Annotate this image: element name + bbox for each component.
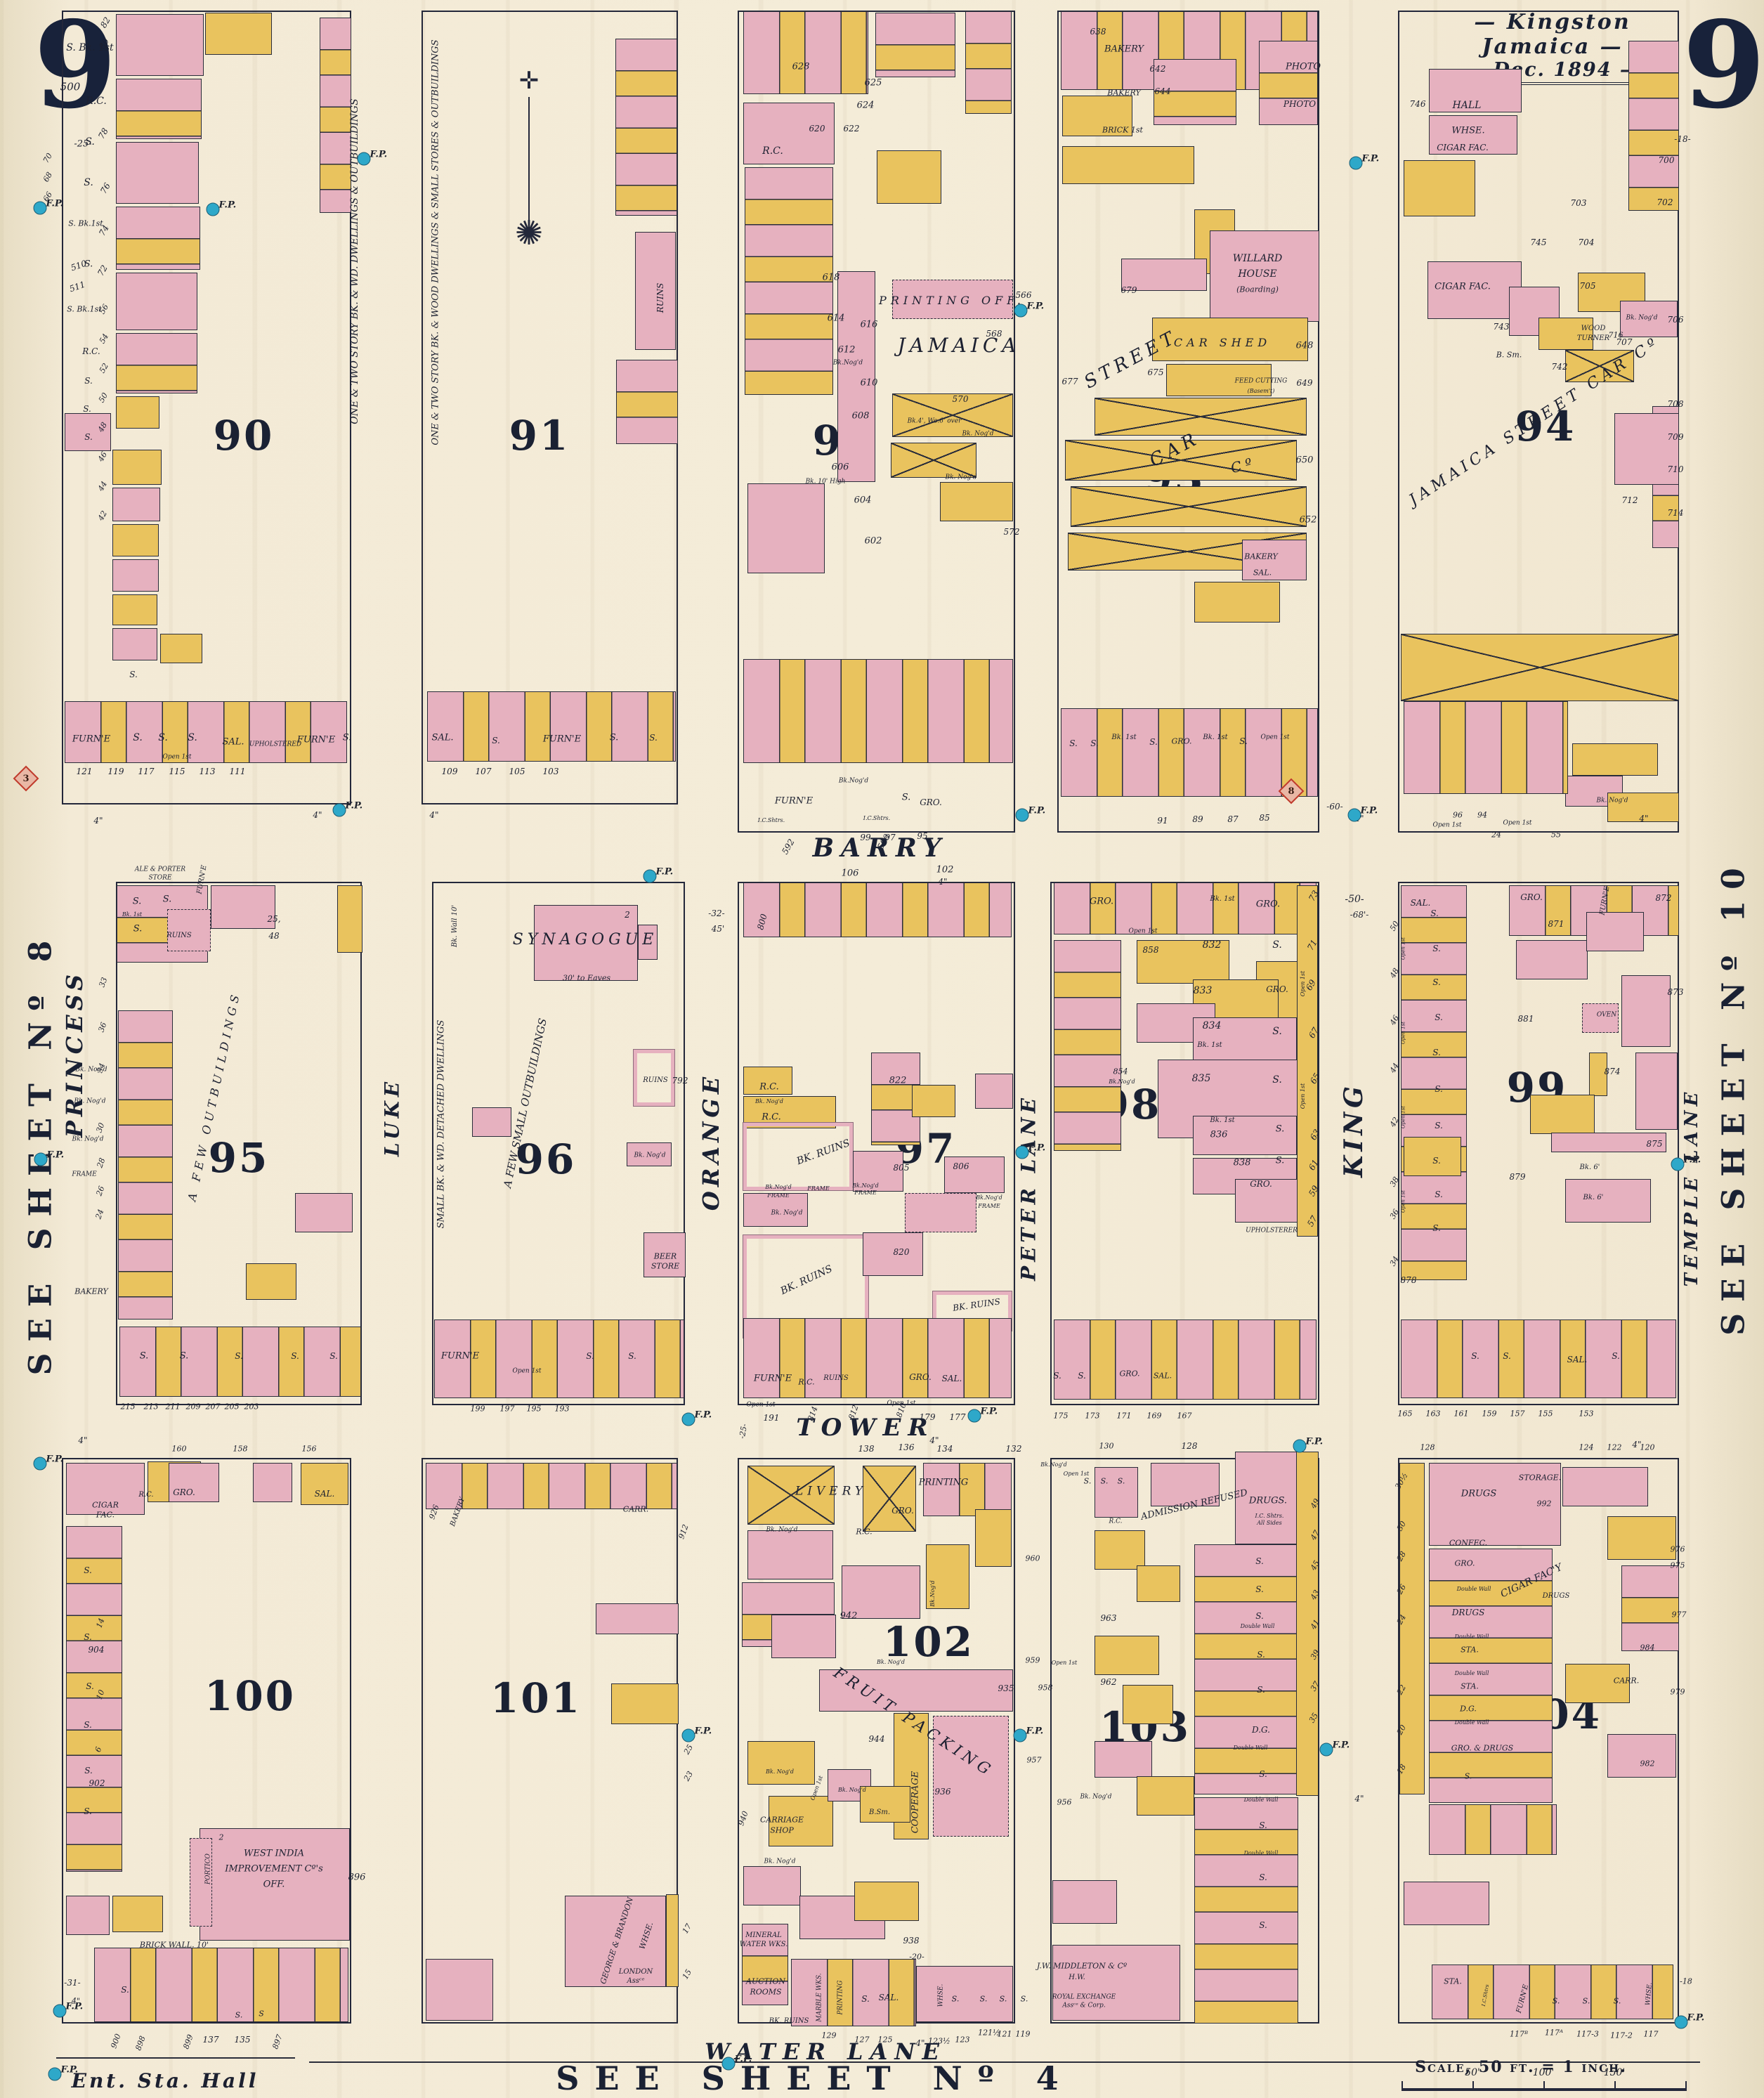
fire-plug-label: F.P.	[1306, 1437, 1324, 1447]
map-label: 106	[842, 869, 859, 878]
map-label: LONDON	[619, 1969, 653, 1976]
map-label: 936	[935, 1787, 951, 1796]
map-label: 896	[348, 1873, 366, 1882]
map-label: DRUGS	[1543, 1593, 1570, 1600]
map-label: 746	[1410, 100, 1426, 108]
map-label: S.	[861, 1995, 870, 2003]
fire-plug-label: F.P.	[219, 200, 237, 211]
map-label: 4"	[938, 878, 947, 886]
map-label: J.W. MIDDLETON & Cº	[1037, 1962, 1127, 1970]
map-label: CARRIAGE	[760, 1816, 804, 1824]
map-label: Open 1st	[1402, 937, 1406, 960]
building	[616, 360, 678, 444]
map-label: 107	[476, 767, 492, 776]
map-label: FRAME	[72, 1172, 96, 1178]
map-label: Bk. 10' High	[806, 479, 846, 486]
building	[747, 483, 825, 573]
fire-plug-marker: F.P.	[1348, 809, 1361, 822]
map-label: S.	[586, 1352, 594, 1360]
map-label: 156	[302, 1445, 317, 1453]
fire-plug-marker: F.P.	[1671, 1158, 1685, 1171]
building	[1095, 1530, 1145, 1570]
fire-plug-icon	[968, 1409, 981, 1423]
map-label: R.C.	[798, 1379, 814, 1386]
map-label: S.	[1435, 1121, 1443, 1130]
map-label: 960	[1026, 1555, 1040, 1563]
fire-plug-marker: F.P.	[682, 1729, 695, 1742]
map-label: D.G.	[1460, 1705, 1477, 1713]
map-label: 165	[1398, 1410, 1413, 1418]
map-label: SAL.	[942, 1374, 962, 1383]
map-label: HALL	[1453, 100, 1482, 110]
map-label: -32-	[708, 909, 724, 918]
fire-plug-icon	[333, 804, 346, 817]
building	[295, 1193, 353, 1232]
map-label: 161	[1454, 1410, 1469, 1418]
map-label: 130	[1099, 1442, 1114, 1450]
building	[116, 273, 197, 330]
map-label: Bk. Nog'd	[771, 1211, 802, 1217]
map-label: Open 1st	[1128, 929, 1157, 935]
map-label: ROYAL EXCHANGE	[1052, 1995, 1116, 2001]
map-label: Double Wall	[1234, 1745, 1268, 1751]
building	[1621, 975, 1671, 1047]
map-label: 159	[1482, 1410, 1497, 1418]
scale-text: Scale, 50 ft. = 1 inch.	[1415, 2059, 1627, 2075]
map-label: S.	[180, 1352, 189, 1361]
map-label: Double Wall	[1455, 1671, 1489, 1676]
fire-plug-icon	[1348, 809, 1361, 822]
map-label: S.	[1257, 1686, 1265, 1694]
map-label: S.	[84, 1721, 92, 1729]
building	[1404, 701, 1568, 794]
map-label: 610	[861, 379, 878, 388]
map-label: S.	[1078, 1371, 1086, 1380]
map-label: 171	[1117, 1412, 1132, 1420]
map-label: S.	[1432, 1156, 1441, 1165]
map-label: ALE & PORTER	[135, 867, 185, 873]
building	[472, 1107, 511, 1137]
building	[965, 11, 1012, 114]
map-label: S.	[121, 1986, 129, 1994]
map-label: WHSE.	[939, 1984, 945, 2007]
map-label: 904	[89, 1646, 105, 1654]
map-label: S.	[1101, 1478, 1109, 1485]
map-label: GRO.	[1172, 738, 1192, 745]
building	[112, 559, 159, 592]
map-label: 624	[857, 101, 875, 110]
ent-sta-hall-label: Ent. Sta. Hall	[72, 2071, 259, 2091]
map-label: 70	[42, 152, 54, 164]
map-label: Double Wall	[1455, 1720, 1489, 1726]
building	[743, 659, 1013, 763]
map-label: 897	[271, 2033, 284, 2050]
map-label: 15	[681, 1968, 693, 1981]
map-label: OVEN	[1597, 1012, 1616, 1019]
map-label: SYNAGOGUE	[513, 932, 658, 948]
map-label: 614	[828, 314, 845, 323]
building	[116, 396, 159, 429]
map-label: Bk. 1st	[1197, 1042, 1222, 1049]
map-label: Open 1st	[162, 755, 191, 761]
map-label: RUINS	[166, 932, 192, 939]
fire-plug-label: F.P.	[981, 1407, 998, 1417]
map-label: S. Bk.1st	[67, 306, 101, 313]
map-label: S.	[1503, 1352, 1511, 1360]
map-label: FAC.	[96, 1511, 115, 1519]
building	[1071, 486, 1307, 527]
map-label: 709	[1668, 433, 1684, 441]
map-label: 117	[1644, 2031, 1659, 2038]
street-label-king: KING	[1339, 1082, 1368, 1178]
map-label: S.	[1000, 1995, 1007, 2003]
map-label: SAL.	[879, 1993, 899, 2002]
map-label: S.	[133, 897, 142, 906]
map-label: 2	[625, 911, 630, 919]
map-label: 96	[1453, 812, 1463, 819]
building	[1259, 41, 1318, 125]
map-label: 4"	[1639, 814, 1648, 823]
map-label: 902	[89, 1779, 105, 1787]
map-label: 612	[838, 346, 856, 355]
fire-plug-icon	[1675, 2016, 1688, 2029]
fire-plug-marker: F.P.	[1016, 809, 1029, 822]
street-label-peter-lane: PETER LANE	[1017, 1094, 1040, 1281]
fire-plug-icon	[1671, 1158, 1685, 1171]
fire-plug-label: F.P.	[346, 801, 363, 812]
fire-plug-label: F.P.	[1361, 806, 1378, 816]
map-label: 858	[1143, 946, 1159, 954]
map-label: 854	[1113, 1068, 1128, 1076]
map-label: 625	[865, 79, 882, 88]
fire-plug-marker: F.P.	[722, 2057, 736, 2071]
map-label: Open 1st	[1402, 1022, 1406, 1044]
map-label: 649	[1297, 379, 1313, 387]
map-label: S.	[980, 1995, 988, 2003]
map-label: 177	[950, 1413, 966, 1421]
map-label: GRO.	[1520, 893, 1543, 901]
map-label: CARR.	[623, 1506, 648, 1513]
map-label: Bk. Nog'd	[766, 1769, 794, 1775]
map-label: 36	[97, 1022, 107, 1034]
map-label: 157	[1510, 1410, 1525, 1418]
map-label: S.	[1053, 1371, 1061, 1380]
building	[745, 167, 833, 395]
map-label: 616	[861, 320, 878, 330]
map-label: 742	[1552, 363, 1568, 371]
fire-plug-label: F.P.	[61, 2065, 79, 2076]
map-label: Open 1st	[1402, 1190, 1406, 1213]
fire-plug-icon	[1350, 157, 1363, 170]
map-label: S.	[84, 377, 93, 385]
map-label: BAKERY	[74, 1288, 107, 1296]
map-label: JAMAICA	[897, 336, 1020, 356]
map-label: 193	[555, 1405, 570, 1413]
map-label: Double Wall	[1455, 1634, 1489, 1640]
map-label: 608	[852, 412, 870, 421]
scale-tick	[1543, 2081, 1545, 2091]
map-label: 745	[1531, 238, 1547, 247]
building	[1404, 160, 1475, 216]
map-label: 136	[899, 1443, 915, 1452]
map-label: WHSE.	[1451, 126, 1484, 136]
map-label: STA.	[1461, 1646, 1479, 1654]
map-label: Double Wall	[1457, 1586, 1491, 1592]
building	[167, 909, 211, 951]
map-label: Bk. 1st	[1210, 896, 1234, 903]
fire-plug-label: F.P.	[695, 1726, 712, 1737]
map-label: Open 1st	[1402, 1106, 1406, 1128]
map-label: 2	[219, 1834, 224, 1842]
fire-plug-icon	[682, 1413, 695, 1426]
map-label: S.	[84, 1807, 92, 1816]
map-label: Bk. Nog'd	[1626, 315, 1657, 322]
map-label: 163	[1426, 1410, 1441, 1418]
fire-plug-marker: F.P.	[1016, 1146, 1029, 1159]
map-label: GRO.	[1120, 1370, 1140, 1378]
building	[611, 1683, 679, 1724]
map-label: 119	[1016, 2031, 1031, 2038]
map-label: 822	[889, 1076, 907, 1086]
fire-plug-icon	[53, 2005, 67, 2018]
map-label: 124	[1579, 1444, 1594, 1452]
map-label: S.	[86, 1682, 94, 1690]
building	[1432, 1965, 1673, 2019]
map-label: 938	[903, 1936, 920, 1945]
map-label: S.	[1272, 1027, 1282, 1036]
map-label: 832	[1203, 940, 1222, 950]
map-label: -68'-	[1350, 911, 1369, 919]
building	[877, 150, 941, 204]
map-label: S.	[140, 1352, 149, 1361]
map-label: S.	[329, 1352, 338, 1360]
map-label: 898	[134, 2035, 147, 2051]
map-label: OFF.	[263, 1880, 285, 1889]
map-label: BAKERY	[1104, 45, 1144, 54]
map-label: 677	[1062, 377, 1078, 386]
fire-plug-marker: F.P.	[53, 2005, 67, 2018]
map-label: FURN'E	[754, 1374, 792, 1383]
scale-bar-line: 50' 100' 150'	[1402, 2088, 1686, 2091]
map-label: Double Wall	[1241, 1624, 1275, 1629]
map-label: GRO.	[891, 1506, 914, 1515]
map-label: 628	[792, 63, 810, 72]
building	[112, 450, 162, 485]
street-label-temple-lane: TEMPLE LANE	[1681, 1088, 1702, 1287]
building	[1401, 1320, 1676, 1398]
building	[912, 1085, 955, 1117]
building	[854, 1882, 919, 1921]
building	[112, 524, 159, 556]
fire-plug-marker: F.P.	[48, 2068, 62, 2081]
map-label: S.	[1118, 1478, 1125, 1485]
map-label: 167	[1177, 1412, 1192, 1420]
map-label: Bk. Nog'd	[962, 431, 993, 438]
building	[743, 103, 835, 164]
map-label: S.	[952, 1995, 960, 2003]
map-label: Open 1st	[1432, 823, 1461, 829]
map-label: -31-	[64, 1979, 80, 1987]
map-label: S.	[84, 1633, 92, 1641]
map-label: R.C.	[762, 146, 783, 156]
map-label: 4"	[78, 1436, 87, 1445]
building	[112, 628, 157, 660]
map-label: 874	[1605, 1067, 1621, 1076]
map-label: S.	[1553, 1998, 1560, 2005]
map-label: 622	[844, 124, 860, 133]
map-label: PRINTING	[838, 1981, 844, 2015]
map-label: Bk.Nog'd	[852, 1183, 879, 1189]
map-label: SAL.	[431, 734, 453, 743]
map-label: GRO.	[173, 1488, 195, 1497]
fire-plug-marker: F.P.	[333, 804, 346, 817]
building	[1054, 1320, 1317, 1400]
map-label: 838	[1234, 1159, 1251, 1168]
map-label: STORE	[149, 875, 172, 882]
building	[118, 1010, 173, 1320]
fire-plug-marker: F.P.	[1320, 1743, 1333, 1757]
map-label: 976	[1671, 1546, 1685, 1553]
map-label: S.	[610, 734, 619, 743]
fire-plug-icon	[1016, 1146, 1029, 1159]
map-label: R.C.	[856, 1528, 872, 1536]
map-label: 982	[1640, 1760, 1655, 1768]
building	[1137, 1776, 1194, 1816]
map-label: 117-2	[1610, 2032, 1633, 2040]
map-label: WILLARD	[1233, 254, 1282, 263]
sanborn-map-sheet: { "page":{"sheet_number_left":"9","sheet…	[0, 0, 1764, 2098]
building	[116, 333, 197, 393]
building	[1095, 1741, 1152, 1778]
map-label: Bk. 1st	[1203, 734, 1227, 741]
map-label: 94	[1477, 812, 1487, 819]
map-label: 121	[998, 2031, 1012, 2038]
map-label: CIGAR FAC.	[1435, 282, 1491, 292]
building	[116, 14, 204, 76]
map-label: 899	[182, 2033, 195, 2050]
street-label-barry: BARRY	[813, 833, 948, 863]
fire-plug-marker: F.P.	[1293, 1440, 1307, 1453]
map-label: 155	[1538, 1410, 1553, 1418]
map-label: Bk.Nog'd	[976, 1195, 1002, 1201]
building	[1095, 1636, 1159, 1675]
map-label: 4"	[93, 816, 103, 825]
map-label: S	[259, 2010, 264, 2018]
building	[860, 1786, 910, 1823]
map-label: DRUGS	[1461, 1490, 1496, 1499]
building	[1052, 1880, 1117, 1924]
fire-plug-label: F.P.	[1027, 301, 1045, 312]
map-label: S.	[1272, 940, 1282, 950]
map-label: 85	[1259, 814, 1269, 822]
building	[1194, 1797, 1298, 2024]
map-label: 120	[1640, 1444, 1655, 1452]
map-label: 135	[235, 2035, 251, 2044]
building	[743, 11, 868, 94]
map-label: S.	[1276, 1125, 1285, 1134]
map-label: 28	[96, 1157, 106, 1169]
map-label: IMPROVEMENT Cº's	[225, 1865, 323, 1874]
map-label: 215	[121, 1403, 136, 1411]
building	[1193, 1116, 1297, 1155]
map-label: S.	[902, 793, 911, 802]
map-label: 705	[1580, 282, 1596, 290]
margin-see-sheet-4: SEE SHEET Nº 4	[556, 2059, 1073, 2097]
fire-plug-label: F.P.	[66, 2002, 84, 2012]
fire-plug-icon	[358, 152, 371, 166]
map-label: STA.	[1461, 1683, 1479, 1690]
map-label: S.	[1255, 1557, 1264, 1565]
fire-plug-label: F.P.	[656, 867, 674, 878]
building	[1516, 940, 1588, 979]
fire-plug-label: F.P.	[46, 199, 64, 209]
map-label: 984	[1640, 1644, 1655, 1652]
building	[112, 1896, 163, 1932]
map-label: 105	[509, 767, 525, 776]
building	[743, 882, 1012, 937]
map-label: 712	[1622, 496, 1638, 504]
map-label: I.C.Shtrs.	[758, 818, 785, 823]
fire-plug-label: F.P.	[1028, 1143, 1046, 1154]
map-label: ROOMS	[750, 1988, 781, 1996]
map-label: 24	[94, 1208, 105, 1220]
building	[65, 701, 347, 763]
map-label: FURN'E	[543, 735, 581, 744]
map-label: 716	[1609, 332, 1623, 339]
map-label: FRAME	[978, 1204, 1000, 1209]
map-label: R.C.	[138, 1492, 153, 1499]
map-label: 25	[683, 1743, 695, 1756]
building	[1538, 318, 1593, 350]
map-label: -25-	[738, 1423, 749, 1439]
map-label: 700	[1659, 156, 1675, 164]
map-label: Bk. Nog'd	[1596, 798, 1628, 804]
map-label: 158	[233, 1445, 248, 1453]
map-label: Bk.Nog'd	[839, 778, 868, 785]
map-label: R.C.	[86, 96, 107, 106]
map-label: 572	[1004, 528, 1020, 536]
fire-plug-icon	[34, 202, 47, 215]
map-label: CAR SHED	[1174, 337, 1271, 348]
map-label: -50-	[1345, 894, 1364, 904]
map-label: 956	[1057, 1799, 1072, 1806]
map-label: Assᶜᵉ	[627, 1978, 645, 1985]
map-label: S.	[1612, 1352, 1620, 1360]
map-label: BAKERY	[1107, 89, 1140, 97]
street-label-tower: TOWER	[796, 1414, 934, 1442]
map-label: S.	[1259, 1921, 1267, 1929]
building	[1194, 1544, 1297, 1794]
block-number-96: 96	[516, 1135, 577, 1183]
building	[1123, 1685, 1173, 1724]
map-label: 87	[1227, 815, 1238, 823]
map-label: D.G.	[1252, 1726, 1270, 1734]
fire-plug-label: F.P.	[1028, 806, 1046, 816]
map-label: 703	[1571, 199, 1587, 207]
building	[119, 1327, 361, 1397]
map-label: 23	[683, 1770, 695, 1783]
map-label: S.	[1272, 1075, 1282, 1085]
building	[160, 634, 202, 663]
map-label: S.	[1255, 1585, 1264, 1594]
fire-plug-label: F.P.	[1333, 1740, 1350, 1751]
map-label: 714	[1668, 509, 1684, 517]
map-label: Bk. Nog'd	[945, 475, 976, 481]
map-label: 835	[1192, 1074, 1211, 1083]
fire-plug-icon	[682, 1729, 695, 1742]
building	[66, 1896, 110, 1935]
map-label: S.	[1435, 1190, 1443, 1199]
